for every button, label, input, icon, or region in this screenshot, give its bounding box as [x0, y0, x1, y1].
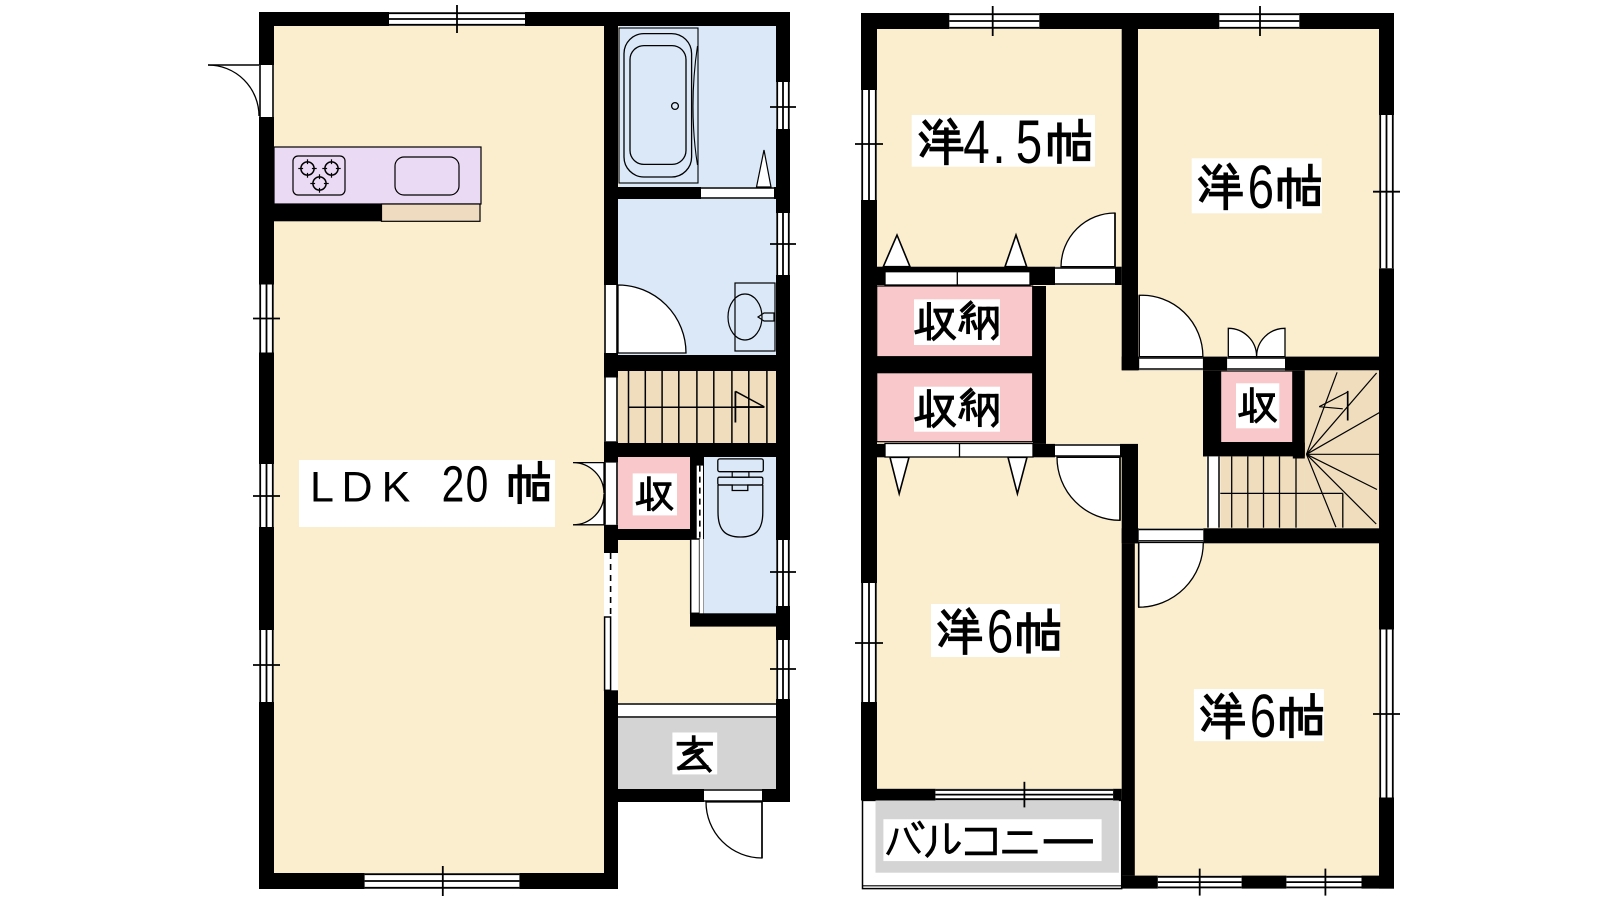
svg-text:D: D	[341, 464, 372, 512]
svg-text:6: 6	[1248, 152, 1274, 221]
svg-text:L: L	[310, 464, 334, 512]
svg-text:4: 4	[963, 107, 989, 176]
svg-text:0: 0	[466, 455, 489, 512]
svg-text:5: 5	[1016, 107, 1042, 176]
svg-text:2: 2	[442, 455, 465, 512]
svg-text:.: .	[992, 107, 1005, 176]
svg-text:6: 6	[987, 597, 1013, 666]
svg-text:K: K	[382, 464, 411, 512]
svg-text:6: 6	[1250, 681, 1276, 750]
